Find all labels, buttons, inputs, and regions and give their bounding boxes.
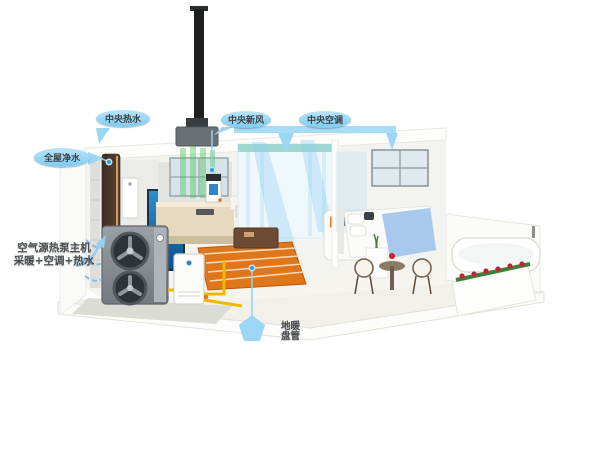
- water-softener-unit: [122, 178, 138, 218]
- bed-blanket: [382, 208, 436, 258]
- label-floor-heating: 地暖 盘管: [281, 322, 300, 342]
- label-heat-pump: 空气源热泵主机 采暖+空调+热水: [8, 242, 100, 268]
- hot-water-pointer: [96, 128, 110, 144]
- label-water-purification: 全屋净水: [34, 148, 90, 167]
- heat-pump-label-line1: 空气源热泵主机: [8, 242, 100, 255]
- floor-heating-label-line2: 盘管: [281, 332, 300, 342]
- label-hot-water: 中央热水: [96, 110, 150, 127]
- heat-pump-outdoor-unit: [102, 226, 168, 304]
- flue-pipe: [190, 6, 208, 123]
- label-air-conditioning: 中央空调: [299, 111, 351, 128]
- label-fresh-air: 中央新风: [221, 111, 271, 128]
- counter-water-purifier: [206, 174, 222, 202]
- heat-pump-label-line2: 采暖+空调+热水: [8, 255, 100, 268]
- buffer-tank: [174, 254, 204, 304]
- pipe-valve: [204, 295, 208, 299]
- house-illustration: [0, 0, 600, 450]
- illustration-stage: 中央热水 中央新风 中央空调 全屋净水 空气源热泵主机 采暖+空调+热水 地暖 …: [0, 0, 600, 450]
- coffee-table: [234, 228, 278, 248]
